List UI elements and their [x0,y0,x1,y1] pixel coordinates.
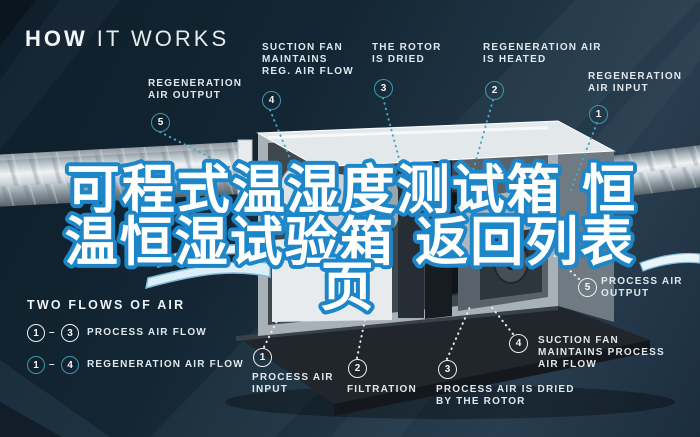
legend-heading: TWO FLOWS OF AIR [27,298,185,312]
infographic-canvas: 可程式温湿度测试箱 恒 温恒湿试验箱 返回列表 页 HOWIT WORKS RE… [0,0,700,437]
step-circle-process-output-5: 5 [578,278,597,297]
title-bold: HOW [25,26,88,51]
page-title: HOWIT WORKS [25,26,229,52]
step-circle-rotor-dried-3: 3 [374,79,393,98]
label-process-air-output: PROCESS AIR OUTPUT [601,276,683,300]
label-suction-fan-process: SUCTION FAN MAINTAINS PROCESS AIR FLOW [538,335,665,371]
label-regeneration-air-input: REGENERATION AIR INPUT [588,71,682,95]
step-circle-reg-output-5: 5 [151,113,170,132]
step-circle-suction-process-4: 4 [509,334,528,353]
label-process-air-dried: PROCESS AIR IS DRIED BY THE ROTOR [436,384,575,408]
step-circle-reg-heated-2: 2 [485,81,504,100]
label-filtration: FILTRATION [347,384,417,396]
legend-process-from-circle: 1 [27,324,45,342]
label-rotor-is-dried: THE ROTOR IS DRIED [372,42,442,66]
title-light: IT WORKS [97,26,229,51]
step-circle-filtration-2: 2 [348,359,367,378]
overlay-line-3: 页 [321,257,376,318]
legend-regeneration-from-circle: 1 [27,356,45,374]
legend-regeneration-dash: – [49,359,55,370]
legend-process-to-circle: 3 [61,324,79,342]
legend-process-dash: – [49,327,55,338]
step-circle-process-input-1: 1 [253,348,272,367]
label-suction-fan-reg: SUCTION FAN MAINTAINS REG. AIR FLOW [262,42,354,78]
legend-regeneration-label: REGENERATION AIR FLOW [87,359,244,371]
label-regeneration-air-heated: REGENERATION AIR IS HEATED [483,42,602,66]
label-process-air-input: PROCESS AIR INPUT [252,372,334,396]
legend-process-label: PROCESS AIR FLOW [87,327,207,339]
legend-regeneration-to-circle: 4 [61,356,79,374]
step-circle-reg-input-1: 1 [589,105,608,124]
step-circle-process-dried-3: 3 [438,360,457,379]
step-circle-suction-reg-4: 4 [262,91,281,110]
label-regeneration-air-output: REGENERATION AIR OUTPUT [148,78,242,102]
